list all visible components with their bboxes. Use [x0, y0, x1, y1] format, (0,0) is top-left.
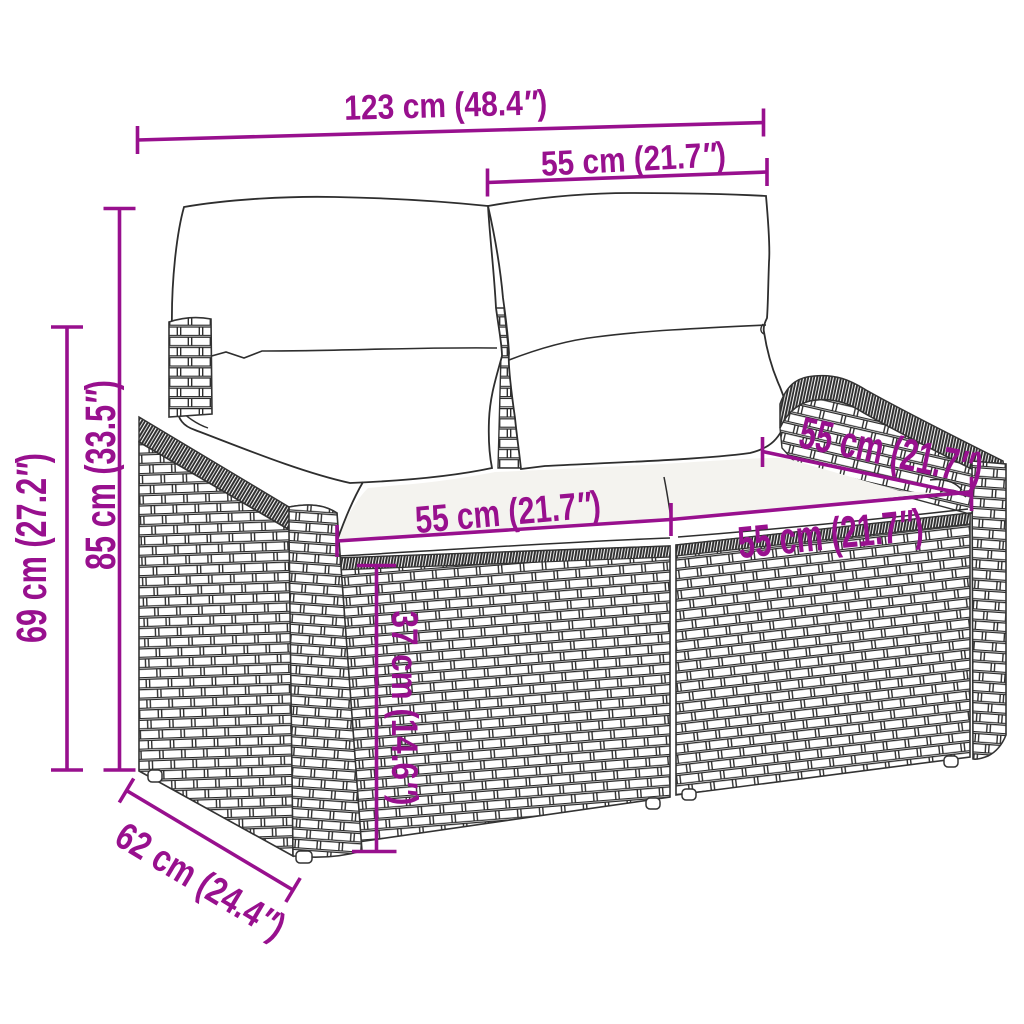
svg-text:37 cm (14.6″): 37 cm (14.6″)	[384, 611, 425, 806]
svg-text:69 cm (27.2″): 69 cm (27.2″)	[8, 453, 56, 643]
svg-text:85 cm (33.5″): 85 cm (33.5″)	[77, 380, 125, 570]
svg-text:123 cm (48.4″): 123 cm (48.4″)	[344, 83, 548, 128]
